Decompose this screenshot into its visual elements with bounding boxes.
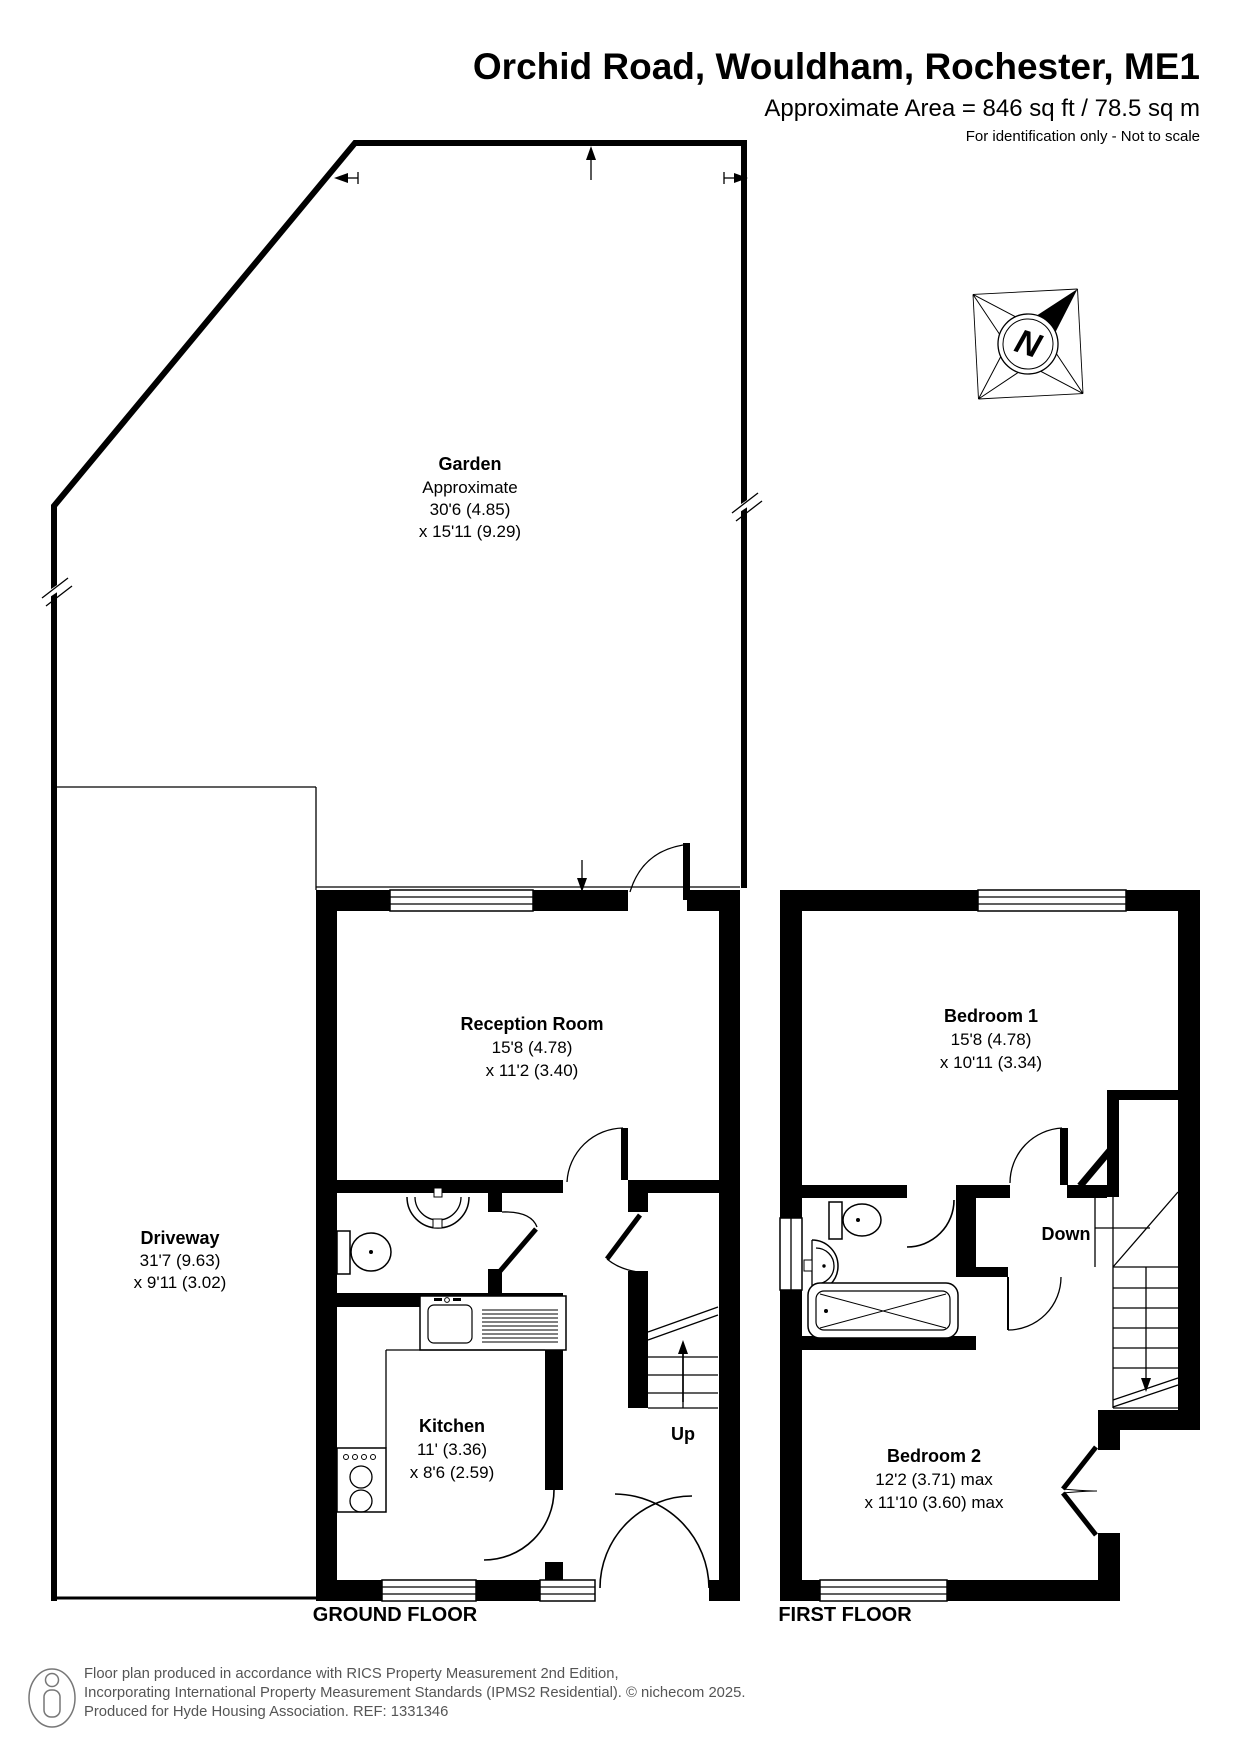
bedroom1-dim1: 15'8 (4.78) [951,1030,1032,1049]
floorplan-canvas: Orchid Road, Wouldham, Rochester, ME1 Ap… [0,0,1241,1755]
boundary-arrow-up [586,146,596,180]
kitchen-dim1: 11' (3.36) [417,1440,487,1459]
kitchen-door [484,1490,554,1560]
bedroom1-door [1010,1128,1068,1185]
kitchen-name: Kitchen [419,1416,485,1436]
bedroom2-door [1008,1277,1061,1330]
stairs-down [1095,1192,1178,1408]
header: Orchid Road, Wouldham, Rochester, ME1 Ap… [473,46,1200,145]
wc-door [495,1212,537,1277]
garden-boundary [40,143,762,1601]
footer-line3: Produced for Hyde Housing Association. R… [84,1704,448,1720]
window [820,1580,947,1601]
reception-dim2: x 11'2 (3.40) [486,1061,579,1080]
window [382,1580,476,1601]
page-title: Orchid Road, Wouldham, Rochester, ME1 [473,46,1200,87]
stairs-up-label: Up [671,1424,695,1444]
window [780,1218,802,1290]
first-floor-caption: FIRST FLOOR [778,1604,912,1626]
bedroom2-label: Bedroom 2 12'2 (3.71) max x 11'10 (3.60)… [865,1446,1004,1512]
reception-door [567,1128,628,1182]
bedroom1-label: Bedroom 1 15'8 (4.78) x 10'11 (3.34) [940,1006,1042,1072]
garden-dim2: x 15'11 (9.29) [419,522,521,541]
wc-toilet-icon [337,1231,391,1274]
wc-sink-icon [407,1188,469,1228]
boundary-arrow-left [334,172,358,184]
kitchen-dim2: x 8'6 (2.59) [410,1463,495,1482]
bedroom1-dim2: x 10'11 (3.34) [940,1053,1042,1072]
reception-dim1: 15'8 (4.78) [492,1038,573,1057]
reception-room-label: Reception Room 15'8 (4.78) x 11'2 (3.40) [460,1014,603,1080]
footer: Floor plan produced in accordance with R… [29,1666,745,1727]
ground-floor-plan: Up Reception Room 15'8 (4.78) x 11'2 (3.… [316,843,740,1601]
kitchen-label: Kitchen 11' (3.36) x 8'6 (2.59) [410,1416,495,1482]
ground-floor-caption: GROUND FLOOR [313,1604,478,1626]
reception-name: Reception Room [460,1014,603,1034]
front-door [630,843,690,900]
bedroom2-dim2: x 11'10 (3.60) max [865,1493,1004,1512]
bedroom1-name: Bedroom 1 [944,1006,1038,1026]
stairs-down-label: Down [1042,1224,1091,1244]
window [390,890,533,911]
window [978,890,1126,911]
driveway-label: Driveway 31'7 (9.63) x 9'11 (3.02) [134,1228,227,1292]
floorplan-page: Orchid Road, Wouldham, Rochester, ME1 Ap… [0,0,1241,1755]
window [540,1580,595,1601]
stairs-up [648,1307,718,1408]
driveway-dim1: 31'7 (9.63) [140,1251,221,1270]
approximate-area: Approximate Area = 846 sq ft / 78.5 sq m [764,95,1200,122]
driveway-dim2: x 9'11 (3.02) [134,1273,227,1292]
footer-line2: Incorporating International Property Mea… [84,1685,745,1701]
footer-line1: Floor plan produced in accordance with R… [84,1666,619,1682]
bedroom2-name: Bedroom 2 [887,1446,981,1466]
identification-note: For identification only - Not to scale [966,128,1200,145]
kitchen-sink-icon [420,1296,566,1350]
stairs-door [607,1215,646,1273]
compass-rose-icon: N [923,239,1132,448]
garden-name: Garden [438,454,501,474]
garden-label: Garden Approximate 30'6 (4.85) x 15'11 (… [419,454,521,541]
first-floor-plan: Down Bedroom 1 15'8 (4.78) x 10'11 (3.34… [780,890,1200,1601]
driveway-name: Driveway [140,1228,219,1248]
bedroom2-dim1: 12'2 (3.71) max [875,1470,993,1489]
toilet-icon [829,1202,881,1239]
garden-dim1: 30'6 (4.85) [430,500,511,519]
bathroom-door [907,1200,954,1247]
bedroom2-double-doors [1063,1447,1097,1535]
hall-doors [600,1494,709,1588]
bathtub-icon [808,1283,958,1338]
garden-approx: Approximate [422,478,517,497]
person-logo-icon [29,1669,75,1727]
cooker-icon [337,1448,386,1512]
